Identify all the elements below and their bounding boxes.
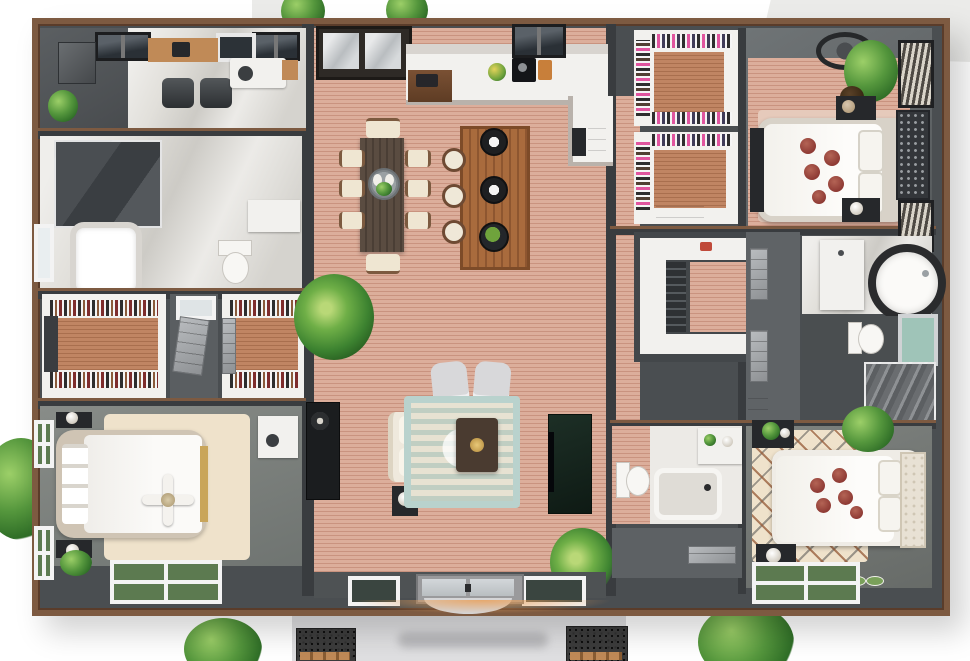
bedroom-br-pillow-2: [878, 496, 902, 532]
bedroom-tr-cushion-3: [804, 164, 820, 180]
closet-b-door: [222, 318, 236, 374]
bathroom-left-toilet-bowl: [222, 252, 249, 284]
coffee-table-gold-tray: [470, 438, 484, 452]
entry-door-pane-2: [470, 579, 514, 596]
bedroom-left-garden-windows-bottom: [110, 560, 222, 604]
closet-b-clothes-rack-bottom: [230, 372, 298, 388]
pantry-b-shelf-top: [652, 134, 732, 146]
bedroom-left-lamp-top: [66, 412, 78, 424]
bedroom-br-lamp-bottom: [766, 548, 781, 563]
bedroom-br-slipper-2: [866, 576, 884, 586]
bath-right-hall-door-1: [750, 248, 768, 300]
bedroom-br-cushion-5: [850, 506, 863, 519]
bath-bottom-vanity-plant: [704, 434, 716, 446]
master-closet-drawer-stack: [666, 262, 686, 332]
dining-chair-head-top: [366, 118, 400, 138]
bedroom-br-cushion-4: [838, 490, 853, 505]
closet-a-shelf-unit: [44, 316, 58, 372]
bedroom-left-window-1: [34, 420, 54, 468]
bedroom-br-cushion-3: [816, 498, 831, 513]
dining-chair-right-2: [405, 180, 431, 197]
bedroom-br-nightstand-vase: [780, 428, 790, 438]
kitchen-counter-plant: [488, 63, 506, 81]
bathroom-right-window: [898, 314, 938, 366]
island-bar-stool-2: [442, 184, 466, 208]
bath-bottom-tub-faucet: [704, 484, 711, 491]
bathroom-right-round-tub: [868, 244, 946, 322]
pantry-a-floor: [654, 52, 724, 112]
kitchen-window-dark: [512, 24, 566, 58]
bedroom-br-tufted-headboard: [900, 452, 926, 548]
office-chair-1: [162, 78, 194, 108]
bedroom-left-vanity-stool: [266, 434, 279, 447]
media-console-speaker: [311, 412, 329, 430]
bath-right-linen-cabinet: [748, 388, 768, 418]
closet-a-clothes-rack-bottom: [50, 372, 158, 388]
bedroom-br-garden-windows: [752, 562, 860, 604]
office-credenza-monitor: [172, 42, 190, 57]
bath-bottom-toilet-bowl: [626, 466, 650, 496]
closet-b-clothes-rack-top: [230, 300, 298, 316]
bedroom-br-cushion-1: [810, 478, 825, 493]
bedroom-tr-lamp-bottom: [850, 202, 863, 215]
island-bar-stool-3: [442, 220, 466, 244]
dining-chair-head-bottom: [366, 254, 400, 274]
bathroom-left-shower: [54, 140, 162, 228]
tree-bottom-left: [184, 618, 262, 661]
entry-door-handles: [465, 584, 471, 592]
pantry-b-clothes-left: [636, 140, 650, 210]
bedroom-top-right-foot-bench: [750, 128, 764, 212]
great-room-palm-plant: [294, 274, 374, 360]
patio-double-door: [316, 26, 412, 80]
bath-bottom-bathtub: [654, 468, 722, 520]
bedroom-br-cushion-2: [832, 468, 847, 483]
bedroom-left-pillows: [62, 444, 88, 524]
island-bar-stool-1: [442, 148, 466, 172]
bathroom-left-bathtub: [70, 222, 142, 298]
bedroom-tr-cushion-4: [828, 176, 844, 192]
bath-bottom-vanity: [698, 428, 742, 464]
island-pendant-light-1: [480, 128, 508, 156]
planter-right-base: [570, 652, 622, 660]
kitchen-sink: [416, 74, 438, 87]
bathroom-left-vanity: [248, 200, 300, 232]
floor-plan-rendering: [0, 0, 970, 661]
bedroom-tr-lamp-top: [842, 100, 855, 113]
porch-shadow-smudge: [398, 632, 548, 648]
bedroom-tr-cushion-1: [800, 138, 816, 154]
kitchen-cutting-board: [538, 60, 552, 80]
bath-right-hall-door-2: [750, 330, 768, 382]
bedroom-tr-blind-window-1: [898, 40, 934, 108]
office-chair-2: [200, 78, 232, 108]
planter-left-base: [300, 652, 350, 660]
bedroom-left-ceiling-fan: [142, 474, 194, 526]
hall-bottom-door: [688, 546, 736, 564]
dining-chair-right-3: [405, 212, 431, 229]
pantry-a-clothes-left: [636, 40, 650, 116]
kitchen-tall-unit: [572, 128, 586, 156]
closet-a-clothes-rack-top: [50, 300, 158, 316]
dining-chair-left-2: [339, 180, 365, 197]
bedroom-left-window-2: [34, 526, 54, 580]
tv-wall-unit: [548, 414, 592, 514]
office-reading-chair: [238, 66, 253, 81]
office-storage-cabinet: [58, 42, 96, 84]
tv-screen: [548, 432, 554, 492]
bedroom-br-pillow-1: [878, 460, 902, 496]
mudroom-bench: [588, 118, 606, 152]
pantry-a-shelf-bottom: [652, 112, 732, 124]
office-skylight-window-1: [95, 32, 151, 61]
island-centerpiece-plant: [479, 222, 509, 252]
bath-bottom-vanity-bowl: [722, 436, 733, 447]
entry-porch-glow: [352, 600, 612, 614]
dining-chair-right-1: [405, 150, 431, 167]
patio-door-pane-1: [323, 33, 359, 69]
entry-door-pane-1: [422, 579, 466, 596]
dining-chair-left-1: [339, 150, 365, 167]
closet-a-wood-floor: [50, 318, 158, 370]
bedroom-tr-cushion-2: [824, 150, 840, 166]
bathroom-left-window: [34, 224, 54, 282]
closet-b-wood-floor: [230, 318, 298, 370]
office-plant: [48, 90, 78, 122]
pantry-a-shelf-top: [652, 34, 732, 48]
centerpiece-plant: [376, 182, 392, 196]
pantry-b-dresser: [656, 196, 704, 220]
fan-hub: [161, 493, 175, 507]
bedroom-br-corner-plant: [842, 406, 894, 452]
bedroom-top-right-pillow-1: [858, 130, 884, 172]
bedroom-left-plant: [60, 550, 92, 576]
bathroom-right-faucet: [838, 250, 844, 256]
bedroom-left-foot-bench: [200, 446, 208, 522]
office-side-table: [282, 60, 298, 80]
bathroom-right-toilet-bowl: [858, 324, 884, 354]
bathroom-right-tub-faucet: [922, 270, 929, 277]
island-pendant-light-2: [480, 176, 508, 204]
patio-door-pane-2: [365, 33, 401, 69]
bedroom-top-right-tufted-headboard: [896, 110, 930, 200]
bedroom-br-nightstand-plant: [762, 422, 780, 440]
master-closet-red-accent: [700, 242, 712, 251]
dining-chair-left-3: [339, 212, 365, 229]
office-skylight-window-2: [252, 32, 300, 61]
dining-centerpiece: [368, 168, 400, 200]
bedroom-tr-cushion-5: [812, 190, 826, 204]
kitchen-pot: [518, 63, 527, 72]
